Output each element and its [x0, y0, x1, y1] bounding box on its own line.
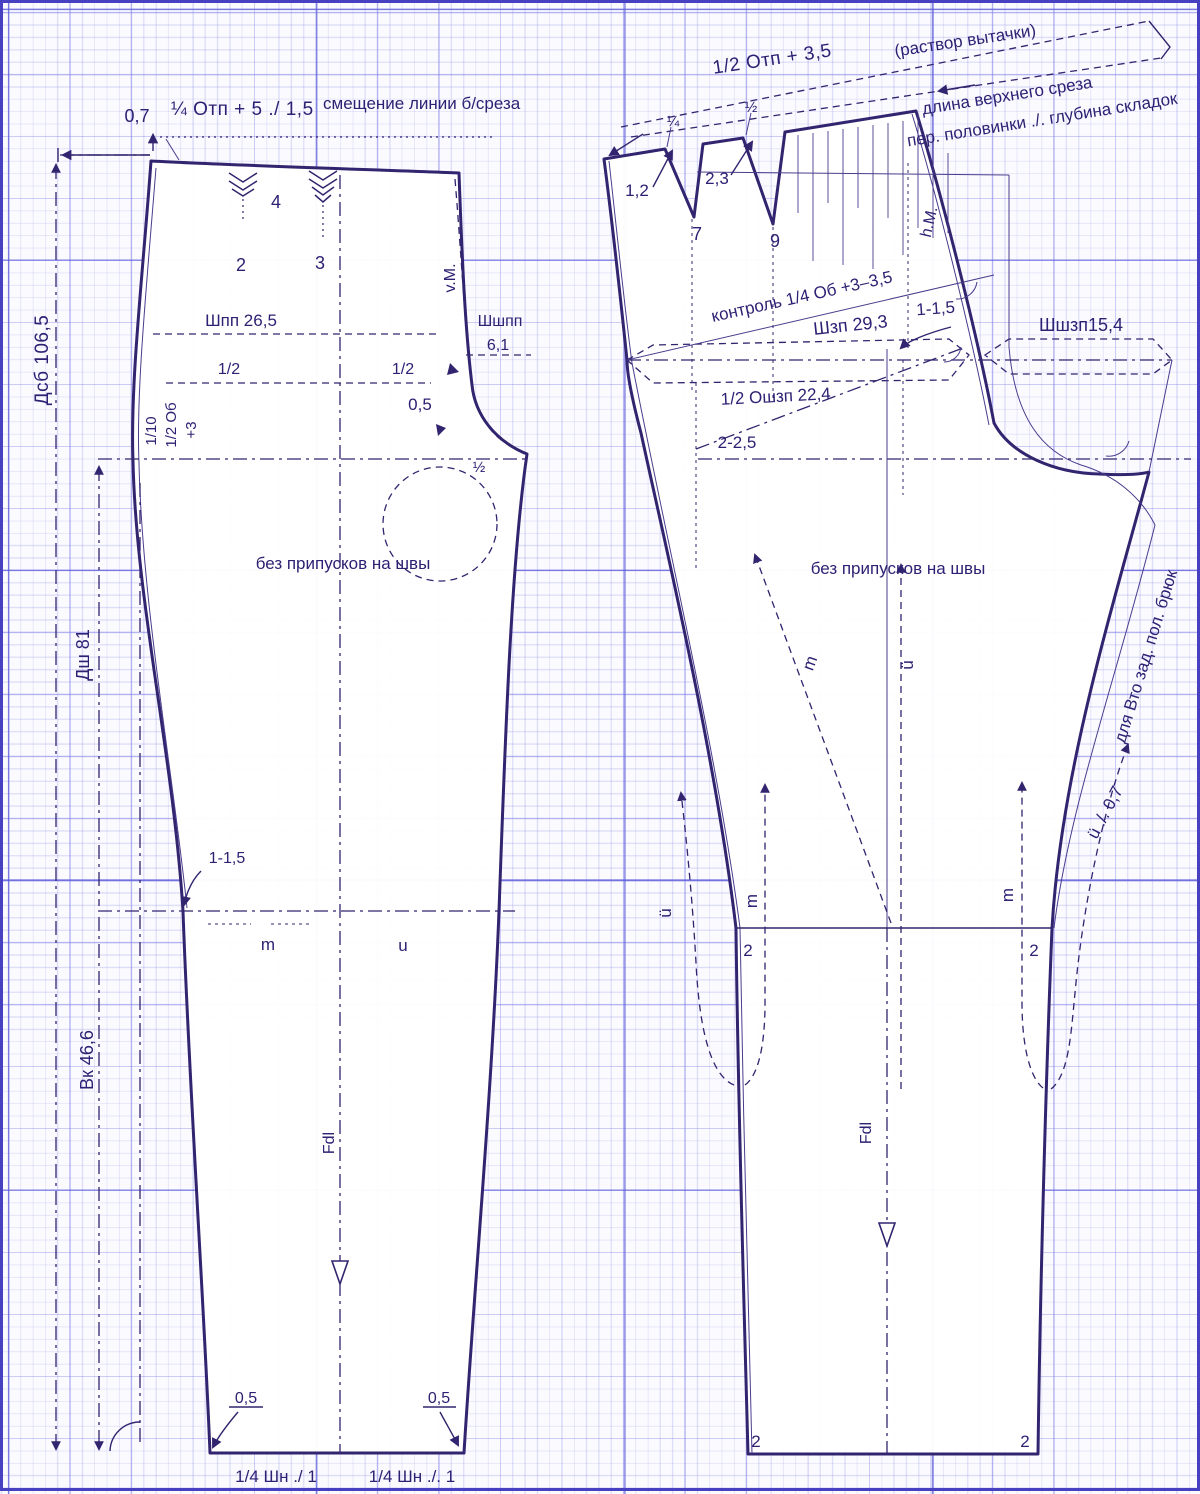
back-knee-2-right: 2 [1029, 941, 1038, 960]
front-offset-07: 0,7 [124, 106, 149, 126]
dim-dsb: Дсб 106,5 [32, 315, 53, 406]
back-m-right: m [998, 888, 1017, 902]
back-m-left: m [742, 894, 761, 908]
back-dart-formula: 1/2 Отп + 3,5 [711, 40, 833, 79]
front-pleat-3: 3 [315, 253, 325, 273]
back-d23: 2,3 [705, 169, 729, 188]
front-shift-note: смещение линии б/среза [323, 94, 521, 113]
back-in225: 2-2,5 [718, 433, 757, 452]
front-piece [98, 161, 531, 1453]
front-hem-formula-left: 1/4 Шн ./ 1 [235, 1467, 317, 1486]
front-waist-formula: ¼ Отп + 5 ./ 1,5 [171, 99, 314, 120]
front-m: m [261, 935, 275, 954]
dim-dsh: Дш 81 [73, 629, 93, 681]
back-u-right: ü ./. 0,7 [1083, 783, 1126, 842]
front-tenth: 1/10 [143, 416, 160, 445]
back-hem-2-right: 2 [1020, 1432, 1029, 1451]
dim-vk: Вк 46,6 [77, 1030, 97, 1090]
back-u-center: ü [898, 660, 917, 669]
front-knee-in: 1-1,5 [209, 850, 246, 867]
front-no-seam: без припусков на швы [256, 554, 431, 573]
back-q14: ¼ [667, 113, 680, 130]
back-knee-2-left: 2 [743, 941, 752, 960]
back-d7: 7 [692, 224, 702, 244]
front-pleat-4: 4 [271, 192, 281, 212]
back-vto-note: для Вто зад. пол. брюк [1110, 567, 1181, 745]
front-shpp: Шпп 26,5 [205, 311, 277, 330]
back-dart-note: (раствор вытачки) [893, 21, 1037, 61]
front-half-c: ½ [473, 459, 486, 476]
front-half-a: 1/2 [218, 361, 240, 378]
front-hem-05-right: 0,5 [428, 1390, 450, 1407]
front-vm: v.M. [442, 263, 459, 292]
back-fdl: Fdl [858, 1122, 875, 1144]
back-d12: 1,2 [625, 181, 649, 200]
pattern-sheet: { "title": "Trouser pattern drafting dia… [0, 0, 1200, 1491]
back-hem-2-left: 2 [751, 1432, 760, 1451]
front-pleat-2: 2 [236, 255, 246, 275]
back-u-left: ü [656, 908, 675, 917]
back-d9: 9 [770, 231, 780, 251]
front-u: u [398, 936, 407, 955]
pattern-drawing: Дсб 106,5 Дш 81 Вк 46,6 0,7 ¼ Отп + 5 ./… [3, 3, 1200, 1494]
front-05: 0,5 [408, 395, 432, 414]
front-half-ob: 1/2 Об [163, 402, 180, 447]
front-shshpp-val: 6,1 [487, 337, 509, 354]
back-q12: ½ [745, 99, 758, 116]
front-shshpp: Шшпп [478, 313, 523, 330]
front-hem-05-left: 0,5 [235, 1390, 257, 1407]
back-shshzp: Шшзп15,4 [1039, 315, 1123, 335]
front-plus3: +3 [183, 421, 200, 438]
front-fdl: Fdl [321, 1132, 338, 1154]
back-in115: 1-1,5 [916, 298, 956, 320]
front-half-b: 1/2 [392, 361, 414, 378]
back-no-seam: без припусков на швы [811, 559, 986, 578]
front-hem-formula-right: 1/4 Шн ./. 1 [369, 1467, 455, 1486]
